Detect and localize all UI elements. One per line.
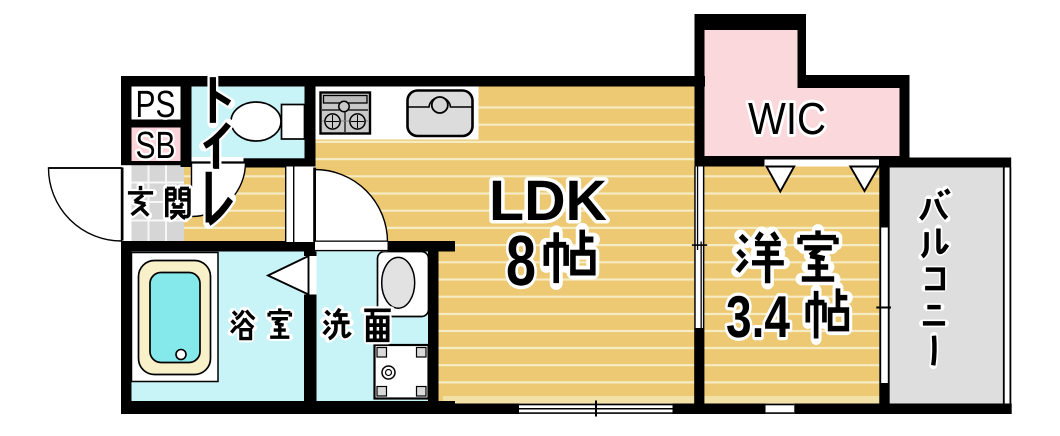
svg-text:3.4: 3.4 bbox=[726, 284, 790, 350]
svg-text:SB: SB bbox=[136, 125, 176, 167]
svg-text:PS: PS bbox=[136, 84, 176, 126]
svg-text:8: 8 bbox=[506, 222, 536, 301]
svg-text:WIC: WIC bbox=[748, 93, 826, 144]
